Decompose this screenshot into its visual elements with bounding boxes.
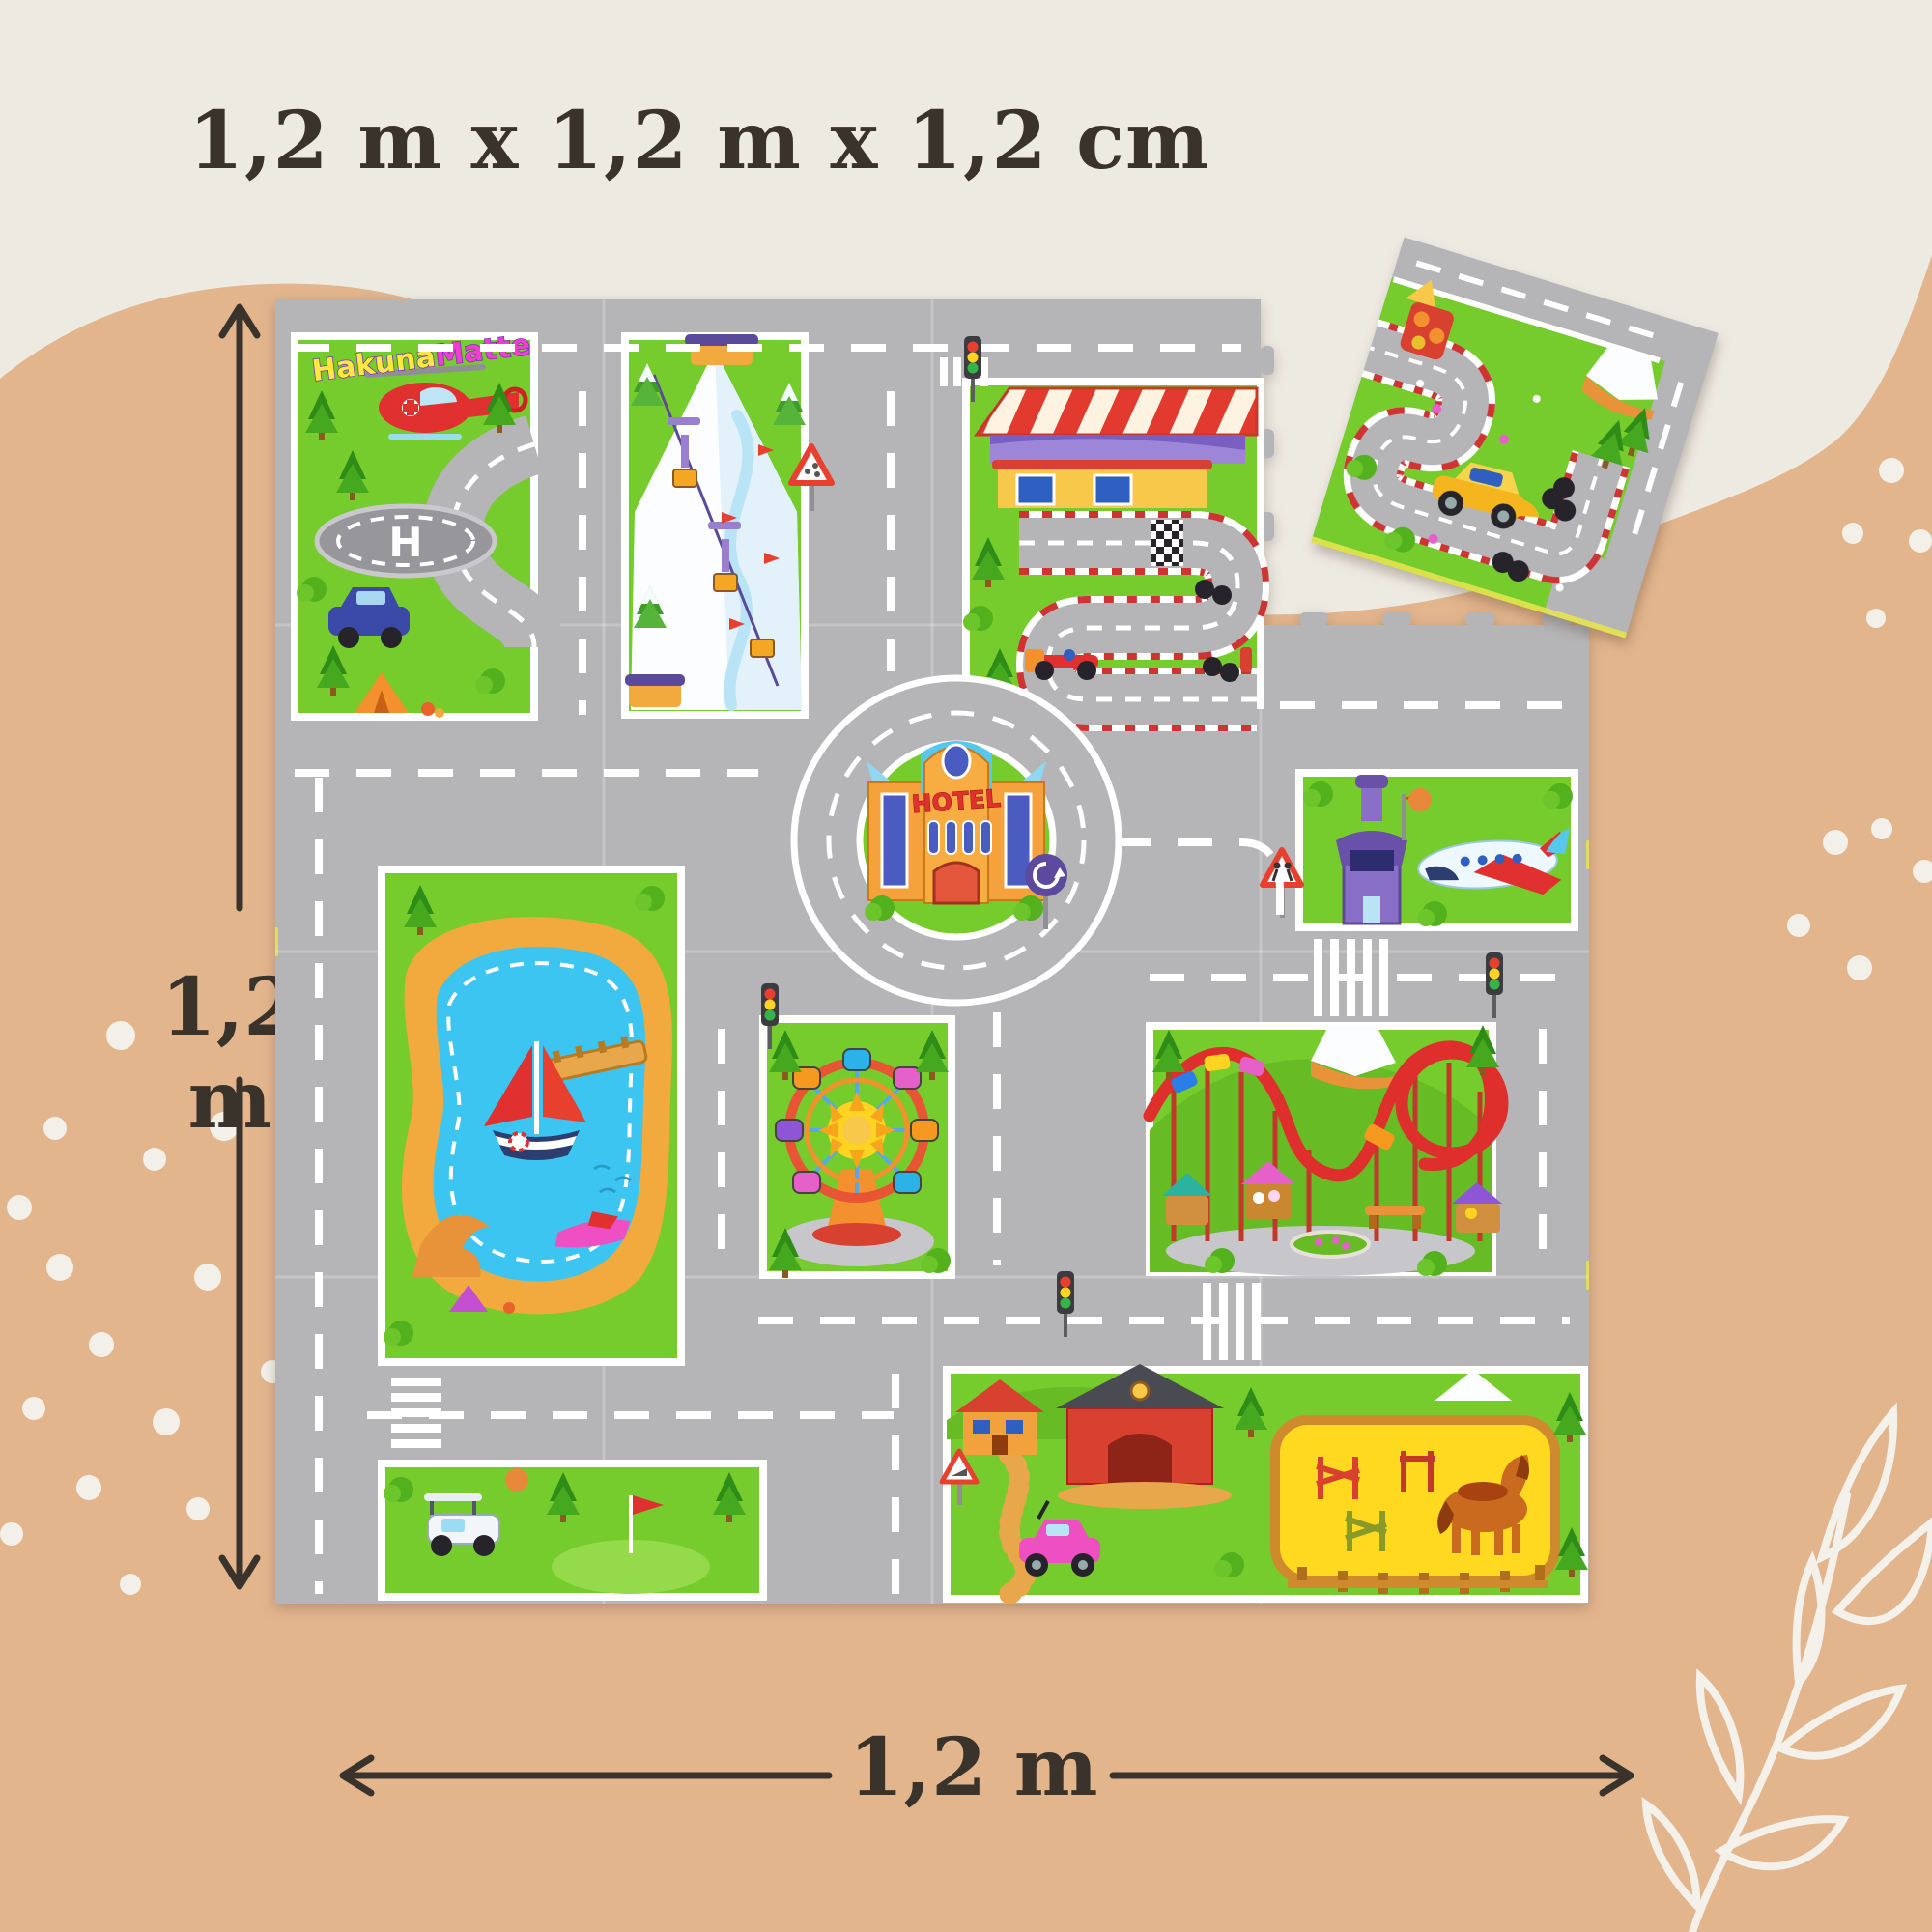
ski-slope-zone [625,334,806,715]
race-circuit-zone [963,382,1261,705]
horse-paddock [1275,1420,1555,1594]
roller-coaster-zone [1150,1025,1502,1276]
airport-zone [1299,773,1575,927]
golf-zone [382,1463,763,1597]
product-infographic: { "title": "1,2 m x 1,2 m x 1,2 cm", "di… [0,0,1932,1932]
farm-zone [942,1364,1588,1599]
lake-zone [382,869,681,1362]
hotel-roundabout: HOTEL [794,678,1119,1003]
helipad-letter: H [388,519,422,566]
finish-line [1151,520,1183,566]
ferris-wheel-zone [763,1019,952,1278]
flower-bed [1292,1232,1369,1257]
helipad-zone: H HakunaMatte [295,328,534,718]
size-title: 1,2 m x 1,2 m x 1,2 cm [188,95,1348,187]
sun-center [818,1092,895,1169]
width-dimension-label: 1,2 m [845,1721,1101,1814]
